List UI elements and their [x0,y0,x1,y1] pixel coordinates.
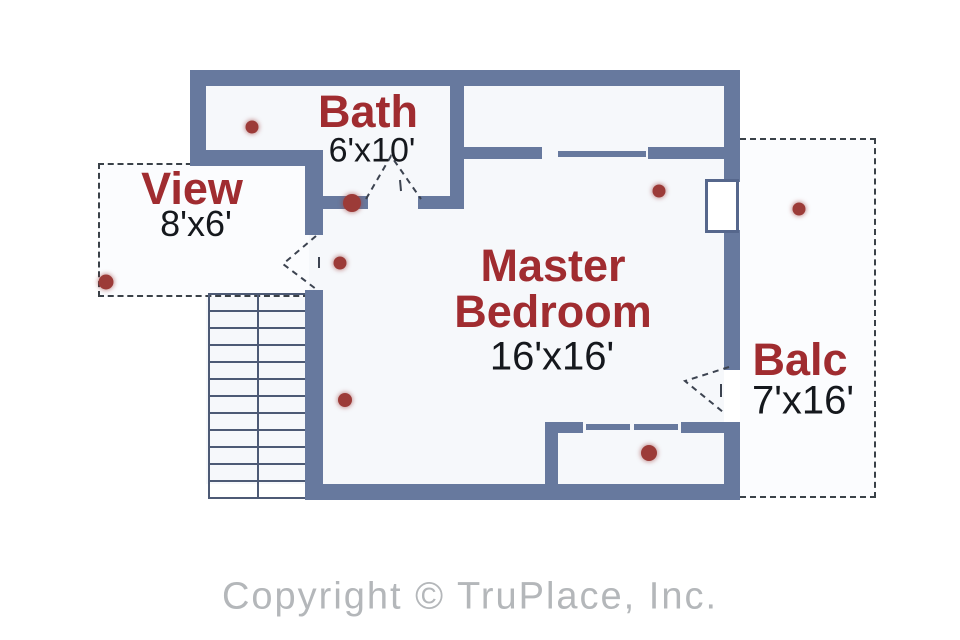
photo-hotspot[interactable] [793,203,806,216]
floorplan-canvas: Bath 6'x10' View 8'x6' Master Bedroom 16… [0,0,960,640]
balcony-dimensions: 7'x16' [752,379,854,424]
master-bedroom-label: Master Bedroom [428,243,678,335]
copyright-text: Copyright © TruPlace, Inc. [222,576,718,619]
photo-hotspot[interactable] [338,393,352,407]
master-bedroom-dimensions: 16'x16' [490,335,614,380]
bath-label: Bath [318,89,418,135]
photo-hotspot[interactable] [641,445,657,461]
photo-hotspot[interactable] [653,185,666,198]
bedroom-door-swing [283,236,316,289]
bath-door-tick [400,180,401,191]
balcony-label: Balc [752,337,847,383]
photo-hotspot[interactable] [246,121,259,134]
photo-hotspot[interactable] [334,257,347,270]
balcony-door-swing [685,367,729,412]
view-dimensions: 8'x6' [160,203,232,245]
photo-hotspot[interactable] [343,194,361,212]
photo-hotspot[interactable] [99,275,114,290]
bath-dimensions: 6'x10' [329,132,416,171]
